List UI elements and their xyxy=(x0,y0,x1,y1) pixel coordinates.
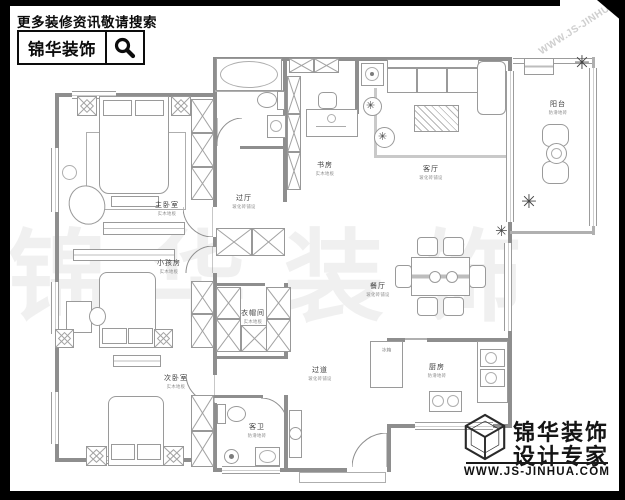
room-label-corridor: 过道玻化砖铺设 xyxy=(304,365,337,384)
plant-icon: ✳ xyxy=(366,101,375,112)
wardrobe-unit xyxy=(241,325,268,352)
nightstand xyxy=(171,96,191,116)
room-label-cloakroom: 衣帽间实木地板 xyxy=(240,308,266,327)
search-box[interactable]: 锦华装饰 xyxy=(17,30,145,65)
desk-lamp xyxy=(327,114,336,123)
plant-icon: ✳ xyxy=(521,193,537,212)
wall xyxy=(387,424,391,472)
door-arc xyxy=(261,398,287,424)
pillow xyxy=(102,328,127,344)
room-label-kids-room: 小孩房实木地板 xyxy=(156,258,182,277)
pillow xyxy=(137,444,161,460)
table-setting xyxy=(429,271,441,283)
burner xyxy=(447,395,459,407)
dining-chair xyxy=(443,237,464,256)
balcony-chair xyxy=(542,161,569,184)
footer-divider xyxy=(466,462,608,464)
footer-url: WWW.JS-JINHUA.COM xyxy=(452,466,622,478)
wall xyxy=(240,146,286,149)
plant-icon: ✳ xyxy=(378,132,387,143)
room-label-dining-room: 餐厅玻化砖铺设 xyxy=(362,281,395,300)
room-label-balcony: 阳台防滑地砖 xyxy=(545,99,571,118)
floorplan-poster: 锦华装饰 WWW.JS-JINHUA.COM xyxy=(0,0,625,500)
nightstand xyxy=(163,446,184,466)
dining-chair xyxy=(417,237,438,256)
plant-icon: ✳ xyxy=(574,54,590,73)
dresser xyxy=(103,222,185,235)
burner xyxy=(432,395,444,407)
frame-edge-bottom xyxy=(0,491,625,500)
closet-unit xyxy=(216,228,252,256)
wall xyxy=(355,57,359,114)
entry-landing xyxy=(299,472,386,483)
sink-basin xyxy=(485,352,497,364)
fridge-label: 冰箱 xyxy=(374,346,399,353)
balcony-bench xyxy=(524,58,554,75)
wardrobe-unit xyxy=(191,431,214,467)
living-area-border xyxy=(374,155,506,158)
window xyxy=(222,466,280,474)
door-arc xyxy=(183,207,213,237)
door-arc xyxy=(217,118,242,146)
bookcase-unit xyxy=(287,114,301,152)
wardrobe-unit xyxy=(266,319,291,352)
bathtub-basin xyxy=(220,61,278,88)
wardrobe-unit xyxy=(216,319,241,352)
pillow xyxy=(103,100,132,116)
dining-chair xyxy=(469,265,486,288)
search-button[interactable] xyxy=(105,32,143,63)
wall xyxy=(213,356,288,359)
frame-edge-top xyxy=(0,0,560,6)
planter-dot xyxy=(370,72,374,76)
dining-chair xyxy=(395,265,412,288)
wardrobe-unit xyxy=(191,395,214,431)
room-label-guest-bath: 客卫防滑地砖 xyxy=(244,422,270,441)
wireframe-cube-icon xyxy=(462,413,508,461)
frame-edge-right xyxy=(619,0,625,500)
bay-window xyxy=(504,243,512,331)
dining-chair xyxy=(417,297,438,316)
toilet-tank xyxy=(277,91,285,110)
chair xyxy=(89,307,106,326)
magnifier-icon xyxy=(113,36,137,60)
table-setting xyxy=(446,271,458,283)
plant-icon: ✳ xyxy=(495,224,508,239)
balcony-window xyxy=(589,68,597,226)
room-label-living-room: 客厅玻化砖铺设 xyxy=(415,164,448,183)
sink-basin xyxy=(259,450,276,463)
tv-shelf xyxy=(113,355,161,367)
toilet-tank xyxy=(217,404,226,424)
sofa-seat xyxy=(387,68,417,93)
closet-unit xyxy=(252,228,285,256)
nightstand xyxy=(55,329,74,348)
wardrobe-unit xyxy=(216,287,241,319)
nightstand xyxy=(77,96,97,116)
room-label-study: 书房实木地板 xyxy=(312,160,338,179)
wall xyxy=(213,283,265,286)
sofa-seat xyxy=(447,68,478,93)
wardrobe-unit xyxy=(191,281,214,314)
wardrobe-unit xyxy=(266,287,291,319)
sink-basin xyxy=(270,120,282,132)
nightstand xyxy=(86,446,107,466)
window xyxy=(51,392,59,444)
sink-basin xyxy=(485,372,497,384)
window xyxy=(51,282,59,334)
bed-bench xyxy=(111,196,159,207)
wardrobe-unit xyxy=(191,167,214,200)
desk-chair xyxy=(318,92,337,109)
wardrobe-unit xyxy=(191,314,214,348)
bookcase-unit xyxy=(287,152,301,190)
closet-unit xyxy=(314,58,339,73)
bookcase-unit xyxy=(287,76,301,114)
frame-corner-wedge xyxy=(597,0,623,22)
window xyxy=(51,148,59,212)
sofa-back xyxy=(387,59,479,68)
toilet xyxy=(227,406,246,422)
brand-name: 锦华装饰 xyxy=(19,32,105,63)
coffee-table xyxy=(414,105,459,132)
header-slogan: 更多装修资讯敬请搜索 xyxy=(17,11,157,31)
balcony-wall xyxy=(510,231,595,234)
dining-chair xyxy=(443,297,464,316)
balcony-table-center xyxy=(551,148,562,159)
frame-edge-left xyxy=(0,0,10,500)
pillow xyxy=(128,328,153,344)
door-arc xyxy=(183,246,213,273)
wardrobe-unit xyxy=(191,99,214,133)
side-table xyxy=(62,165,77,180)
sofa-seat xyxy=(417,68,447,93)
desk-line xyxy=(316,126,346,127)
shower-dot xyxy=(229,454,234,459)
room-label-hall: 过厅玻化砖铺设 xyxy=(228,193,261,212)
wall xyxy=(213,395,263,398)
console-mirror xyxy=(289,427,302,440)
nightstand xyxy=(154,329,173,348)
closet-unit xyxy=(289,58,314,73)
wardrobe-unit xyxy=(191,133,214,167)
kitchen-slider-track xyxy=(405,338,427,340)
pillow xyxy=(135,100,164,116)
pillow xyxy=(111,444,135,460)
room-label-kitchen: 厨房防滑地砖 xyxy=(424,362,450,381)
toilet xyxy=(257,92,277,108)
balcony-slider-window xyxy=(506,71,514,222)
room-label-master-bedroom: 主卧室实木地板 xyxy=(154,200,180,219)
room-label-second-bedroom: 次卧室实木地板 xyxy=(163,373,189,392)
entry-door-arc xyxy=(352,433,387,467)
sofa-chaise xyxy=(477,61,506,115)
